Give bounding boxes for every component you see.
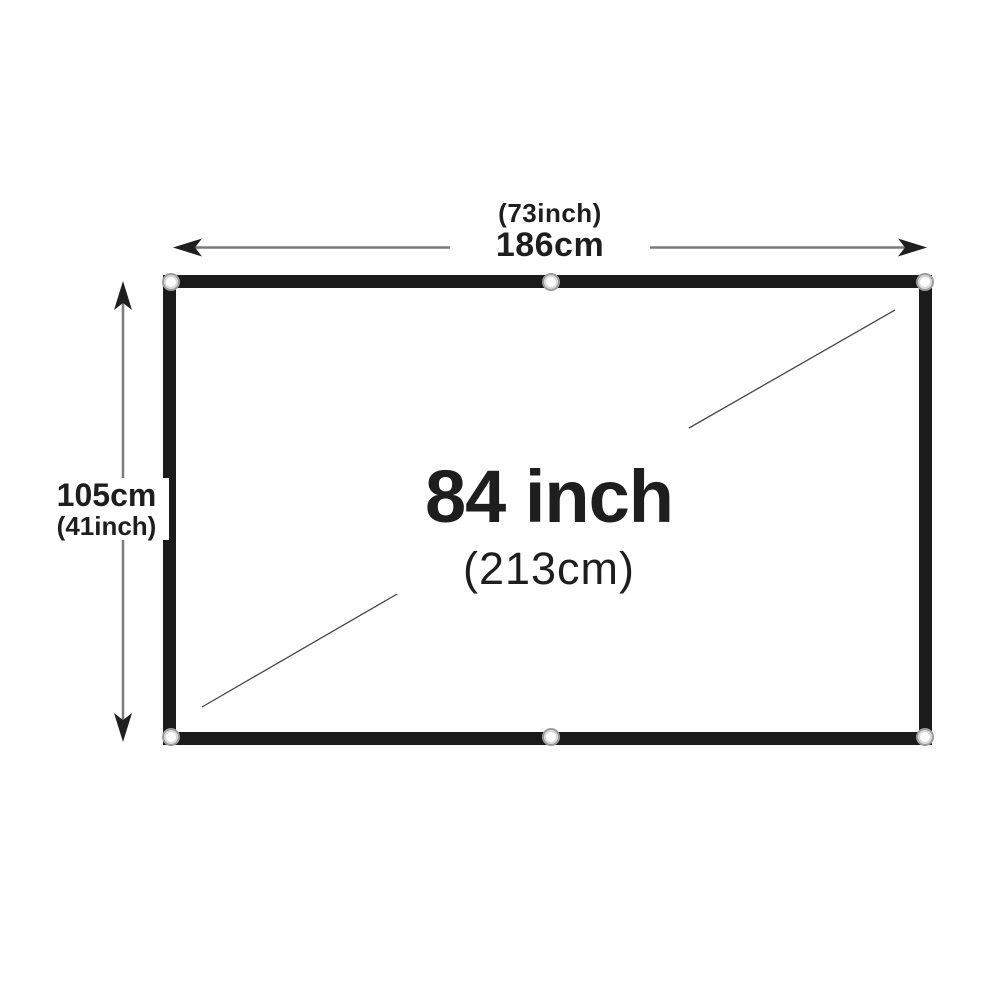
grommet-icon: [162, 728, 180, 746]
width-inch-text: (73inch): [450, 200, 650, 227]
width-cm-text: 186cm: [450, 227, 650, 263]
height-arrow-top-head-icon: [114, 281, 132, 310]
width-dimension-label: (73inch) 186cm: [450, 200, 650, 263]
grommet-icon: [916, 273, 934, 291]
height-inch-text: (41inch): [44, 512, 169, 540]
diagonal-dimension-label: 84 inch (213cm): [349, 460, 749, 594]
grommet-icon: [916, 728, 934, 746]
width-arrow-left-head-icon: [173, 239, 202, 257]
height-dimension-label: 105cm (41inch): [44, 478, 169, 540]
grommet-icon: [542, 728, 560, 746]
grommet-icon: [542, 273, 560, 291]
grommet-icon: [162, 273, 180, 291]
width-arrow-right-head-icon: [898, 239, 927, 257]
screen-dimension-diagram: (73inch) 186cm 105cm (41inch) 84 inch (2…: [0, 0, 1000, 1000]
diagonal-size-text: 84 inch: [349, 460, 749, 534]
diagonal-cm-text: (213cm): [349, 544, 749, 594]
height-cm-text: 105cm: [44, 478, 169, 512]
height-arrow-bottom-head-icon: [114, 713, 132, 742]
